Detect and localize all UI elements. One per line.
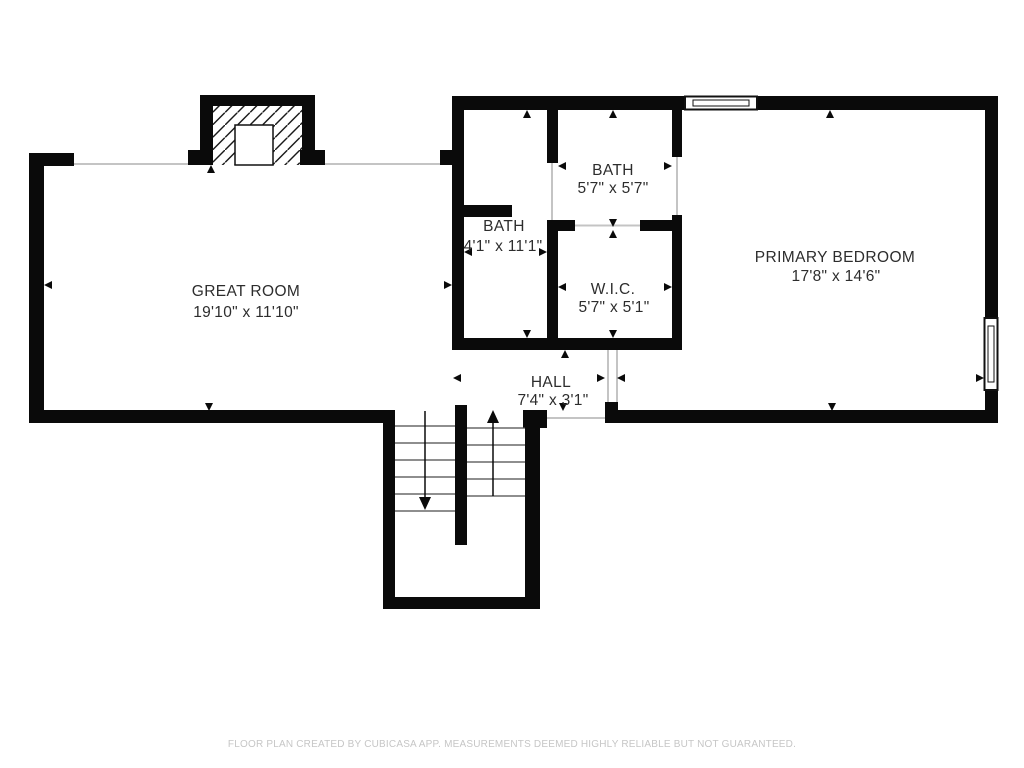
footer-disclaimer: FLOOR PLAN CREATED BY CUBICASA APP. MEAS… — [228, 739, 796, 750]
room-dims-bath-small: 4'1" x 11'1" — [464, 238, 543, 255]
background — [0, 0, 1024, 768]
floor-plan-canvas: GREAT ROOM 19'10" x 11'10" BATH 4'1" x 1… — [0, 0, 1024, 768]
room-dims-bath-top: 5'7" x 5'7" — [577, 180, 648, 197]
fireplace-icon — [188, 95, 325, 165]
room-label-bath-top: BATH — [592, 162, 634, 179]
floor-plan-svg: GREAT ROOM 19'10" x 11'10" BATH 4'1" x 1… — [0, 0, 1024, 768]
room-dims-primary-bedroom: 17'8" x 14'6" — [792, 268, 881, 285]
room-label-hall: HALL — [531, 374, 571, 391]
room-dims-great-room: 19'10" x 11'10" — [193, 304, 299, 321]
room-dims-hall: 7'4" x 3'1" — [517, 392, 588, 409]
room-label-primary-bedroom: PRIMARY BEDROOM — [755, 249, 915, 266]
room-dims-wic: 5'7" x 5'1" — [578, 299, 649, 316]
room-label-bath-small: BATH — [483, 218, 525, 235]
room-label-wic: W.I.C. — [591, 281, 636, 298]
window-icon-right — [985, 318, 998, 390]
room-label-great-room: GREAT ROOM — [192, 283, 301, 300]
window-icon-top — [685, 97, 757, 110]
